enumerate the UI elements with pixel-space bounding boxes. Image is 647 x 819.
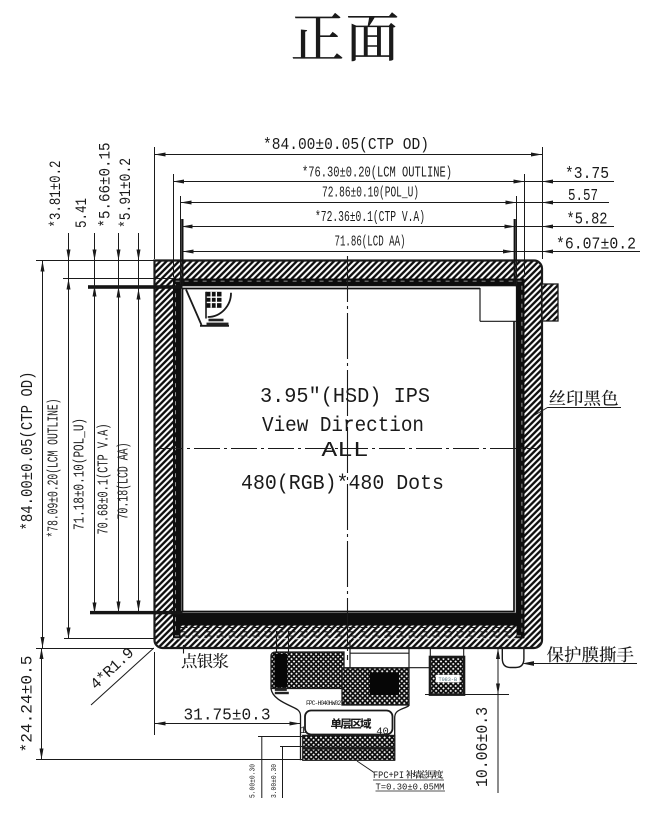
svg-text:71.86(LCD AA): 71.86(LCD AA) (335, 235, 406, 251)
svg-text:71.18±0.10(POL_U): 71.18±0.10(POL_U) (73, 418, 89, 530)
svg-text:View Direction: View Direction (262, 414, 424, 438)
svg-text:10.06±0.3: 10.06±0.3 (473, 707, 492, 787)
svg-text:*76.30±0.20(LCM OUTLINE): *76.30±0.20(LCM OUTLINE) (302, 166, 452, 182)
svg-text:5.41: 5.41 (73, 198, 91, 228)
svg-text:70.68±0.1(CTP V.A): 70.68±0.1(CTP V.A) (97, 424, 113, 535)
svg-text:*6.07±0.2: *6.07±0.2 (556, 235, 636, 254)
svg-text:*78.09±0.20(LCM OUTLINE): *78.09±0.20(LCM OUTLINE) (47, 399, 63, 538)
svg-text:*24.24±0.5: *24.24±0.5 (19, 656, 37, 753)
svg-text:*3.75: *3.75 (565, 164, 609, 183)
svg-text:3.00±0.30: 3.00±0.30 (271, 764, 279, 798)
svg-text:*3.81±0.2: *3.81±0.2 (47, 161, 65, 228)
svg-text:70.18(LCD AA): 70.18(LCD AA) (117, 443, 133, 520)
svg-text:72.86±0.10(POL_U): 72.86±0.10(POL_U) (322, 186, 419, 202)
svg-text:*84.00±0.05(CTP OD): *84.00±0.05(CTP OD) (19, 372, 38, 531)
svg-text:*5.66±0.15: *5.66±0.15 (97, 143, 115, 228)
svg-text:*5.91±0.2: *5.91±0.2 (117, 158, 135, 228)
svg-text:3.95″(HSD) IPS: 3.95″(HSD) IPS (260, 385, 430, 409)
svg-text:FPC-H040HW0270-A: FPC-H040HW0270-A (306, 700, 353, 707)
svg-text:*72.36±0.1(CTP V.A): *72.36±0.1(CTP V.A) (315, 210, 425, 226)
svg-text:ALL: ALL (322, 439, 369, 463)
svg-text:31.75±0.3: 31.75±0.3 (184, 707, 271, 726)
svg-text:*84.00±0.05(CTP OD): *84.00±0.05(CTP OD) (263, 136, 429, 155)
svg-text:*5.82: *5.82 (567, 210, 608, 229)
svg-text:480(RGB)*480 Dots: 480(RGB)*480 Dots (241, 472, 444, 496)
svg-text:T083-B: T083-B (438, 677, 457, 683)
svg-text:5.00±0.30: 5.00±0.30 (250, 764, 258, 798)
svg-text:5.57: 5.57 (568, 186, 598, 205)
